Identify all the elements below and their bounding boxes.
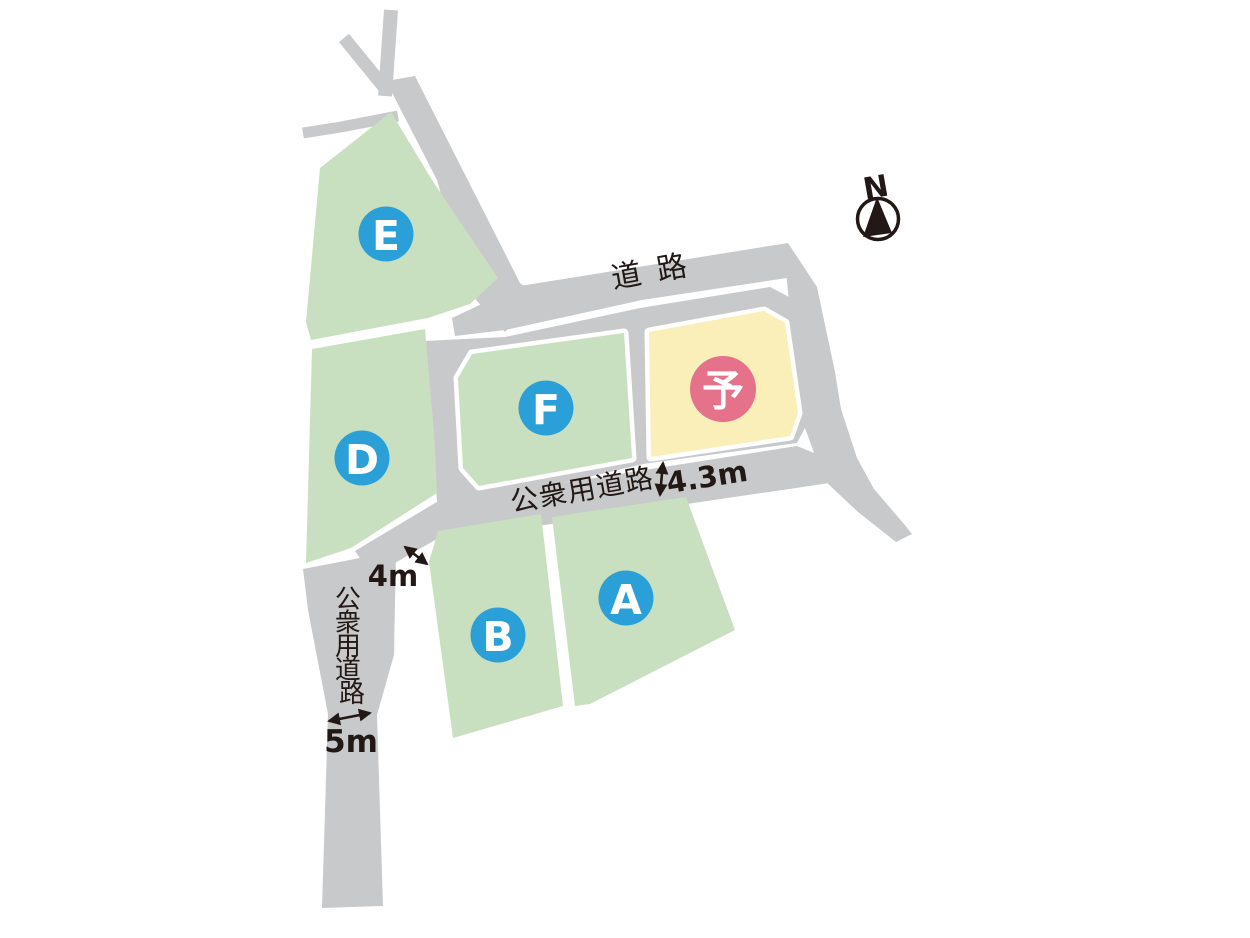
plot-badge-D[interactable]: D xyxy=(335,431,390,486)
plot-badge-A[interactable]: A xyxy=(599,571,654,626)
plot-label-D: D xyxy=(345,436,379,484)
compass: N xyxy=(858,169,899,240)
dim-label-4m: 4m xyxy=(368,559,418,593)
plot-label-reserved: 予 xyxy=(702,367,744,416)
lot-map: E D F B A 予 道路 公衆用道路 公 衆 用 道 xyxy=(0,0,1250,938)
plot-badge-E[interactable]: E xyxy=(359,207,414,262)
public-road-vertical-label: 公 衆 用 道 路 xyxy=(335,585,369,709)
plot-label-B: B xyxy=(482,613,513,661)
plot-badge-reserved[interactable]: 予 xyxy=(690,356,756,422)
east-curve-road xyxy=(786,243,912,542)
plot-badge-B[interactable]: B xyxy=(471,608,526,663)
plot-label-F: F xyxy=(532,386,560,434)
plot-badge-F[interactable]: F xyxy=(519,381,574,436)
dim-label-5m: 5m xyxy=(324,724,378,760)
plot-label-E: E xyxy=(372,212,400,260)
plot-label-A: A xyxy=(610,576,642,624)
